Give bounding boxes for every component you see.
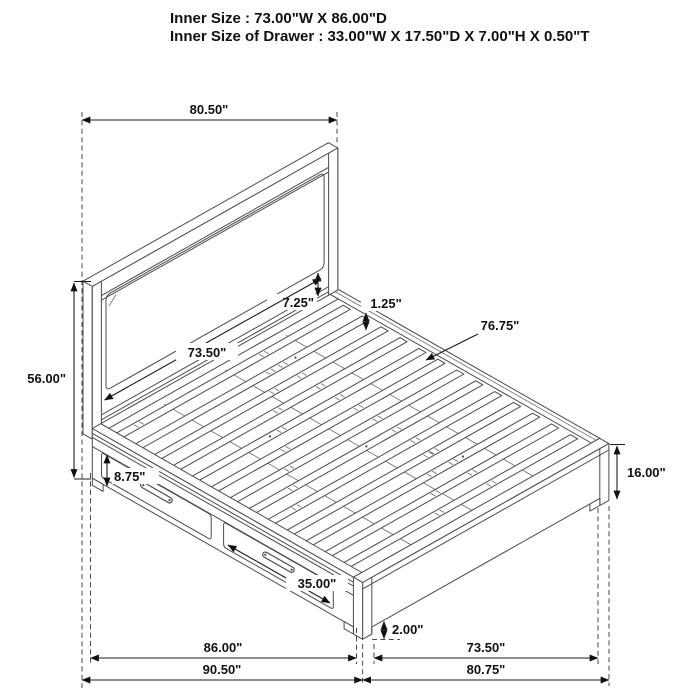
bed-drawing xyxy=(83,143,609,640)
dim-floor-clearance: 2.00" xyxy=(392,622,423,637)
header-titles: Inner Size : 73.00"W X 86.00"D Inner Siz… xyxy=(170,10,589,45)
dim-footboard-height: 16.00" xyxy=(627,465,666,480)
dim-headboard-width: 80.50" xyxy=(190,102,229,117)
slat-detail-dot xyxy=(462,455,464,457)
headboard-left-post xyxy=(92,281,101,439)
dim-inner-length: 86.00" xyxy=(204,640,243,655)
title-inner-size: Inner Size : 73.00"W X 86.00"D xyxy=(170,10,387,27)
dim-slat-thickness: 1.25" xyxy=(370,296,401,311)
diagram-canvas: 80.50" 56.00" 7.25" 73.50" 1.25" 76.75" … xyxy=(0,0,700,700)
dim-rail-to-drawer: 8.75" xyxy=(114,469,145,484)
slat-detail-dot xyxy=(294,357,296,359)
slat-detail-dot xyxy=(269,435,271,437)
dim-slat-length: 76.75" xyxy=(481,318,520,333)
slat-detail-dot xyxy=(264,554,266,556)
slat-detail-dot xyxy=(168,499,170,501)
bed-dimension-diagram: 80.50" 56.00" 7.25" 73.50" 1.25" 76.75" … xyxy=(0,0,700,700)
dim-headboard-height: 56.00" xyxy=(27,371,66,386)
dim-overall-length: 90.50" xyxy=(203,662,242,677)
slat-detail-dot xyxy=(291,569,293,571)
title-drawer-size: Inner Size of Drawer : 33.00"W X 17.50"D… xyxy=(170,28,589,45)
dim-overall-width: 80.75" xyxy=(467,662,506,677)
headboard-left-edge xyxy=(83,281,92,439)
dim-footboard-inner-width: 73.50" xyxy=(467,640,506,655)
dim-drawer-front-width: 35.00" xyxy=(298,576,337,591)
dim-headboard-inner-width: 73.50" xyxy=(188,345,227,360)
slat-detail-dot xyxy=(365,445,367,447)
headboard-right-post xyxy=(329,148,338,297)
slat-detail-dot xyxy=(142,484,144,486)
